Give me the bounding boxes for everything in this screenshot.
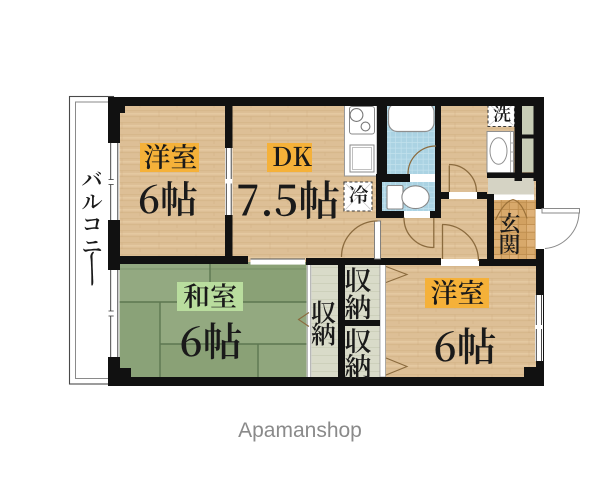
- svg-text:Apamanshop: Apamanshop: [238, 419, 362, 442]
